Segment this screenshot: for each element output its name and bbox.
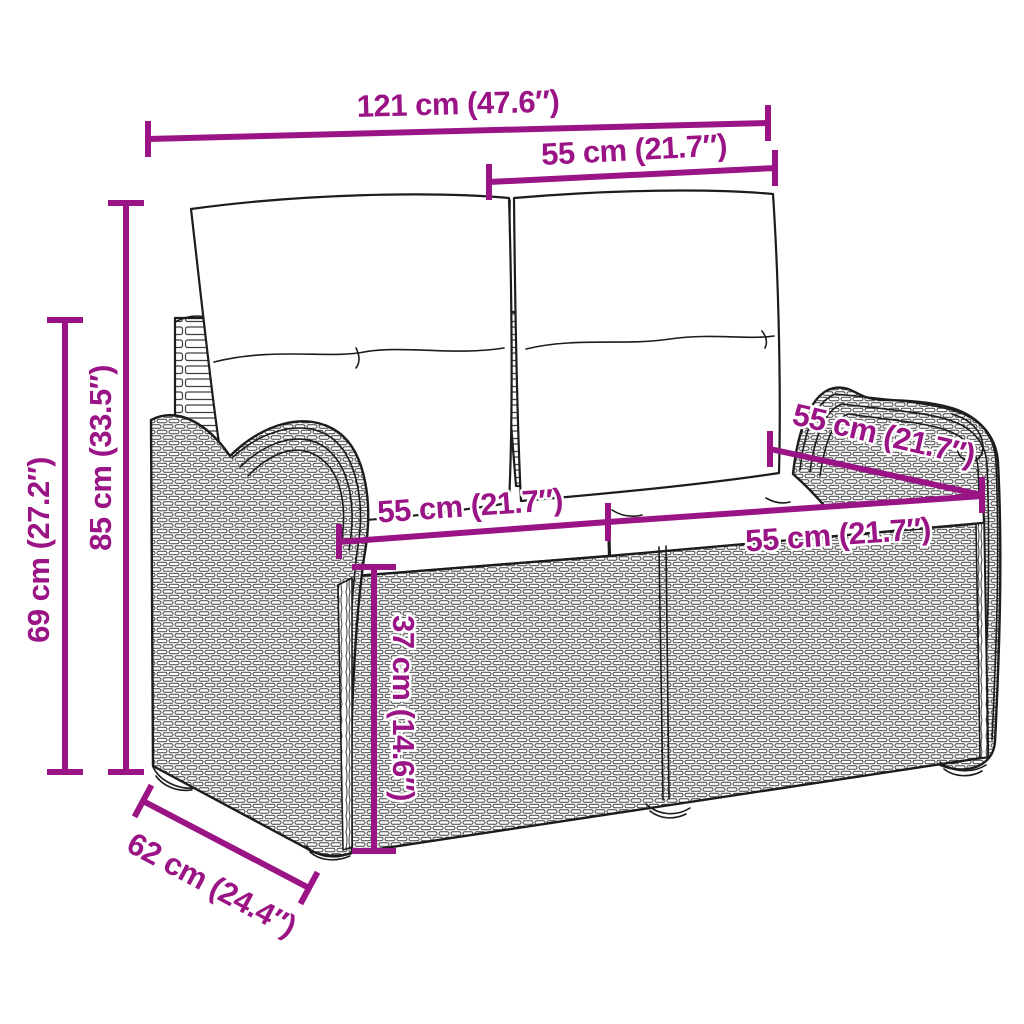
- base-front-face: [342, 523, 988, 853]
- dim-overall-height: 85 cm (33.5″): [83, 203, 144, 772]
- seat-seam-wrinkle-3: [766, 498, 790, 503]
- wicker-base: [342, 523, 988, 853]
- dimension-diagram-page: 121 cm (47.6″) 55 cm (21.7″) 85 cm (33.5…: [0, 0, 1024, 1024]
- dim-base-depth-label: 62 cm (24.4″): [121, 826, 302, 944]
- dim-overall-height-label: 85 cm (33.5″): [83, 365, 118, 551]
- dim-backrest-section-width: 55 cm (21.7″): [489, 127, 775, 200]
- dim-seat-height-label: 37 cm (14.6″): [386, 615, 421, 801]
- dim-backrest-section-width-label: 55 cm (21.7″): [540, 127, 727, 172]
- dim-armrest-height-label: 69 cm (27.2″): [21, 457, 56, 643]
- dim-armrest-height: 69 cm (27.2″): [21, 320, 83, 772]
- seat-seam-wrinkle-1: [612, 510, 642, 516]
- bench-dimension-diagram: 121 cm (47.6″) 55 cm (21.7″) 85 cm (33.5…: [0, 0, 1024, 1024]
- back-cushion-right: [514, 191, 780, 501]
- dim-overall-width-label: 121 cm (47.6″): [356, 84, 559, 124]
- left-armrest: [151, 415, 368, 860]
